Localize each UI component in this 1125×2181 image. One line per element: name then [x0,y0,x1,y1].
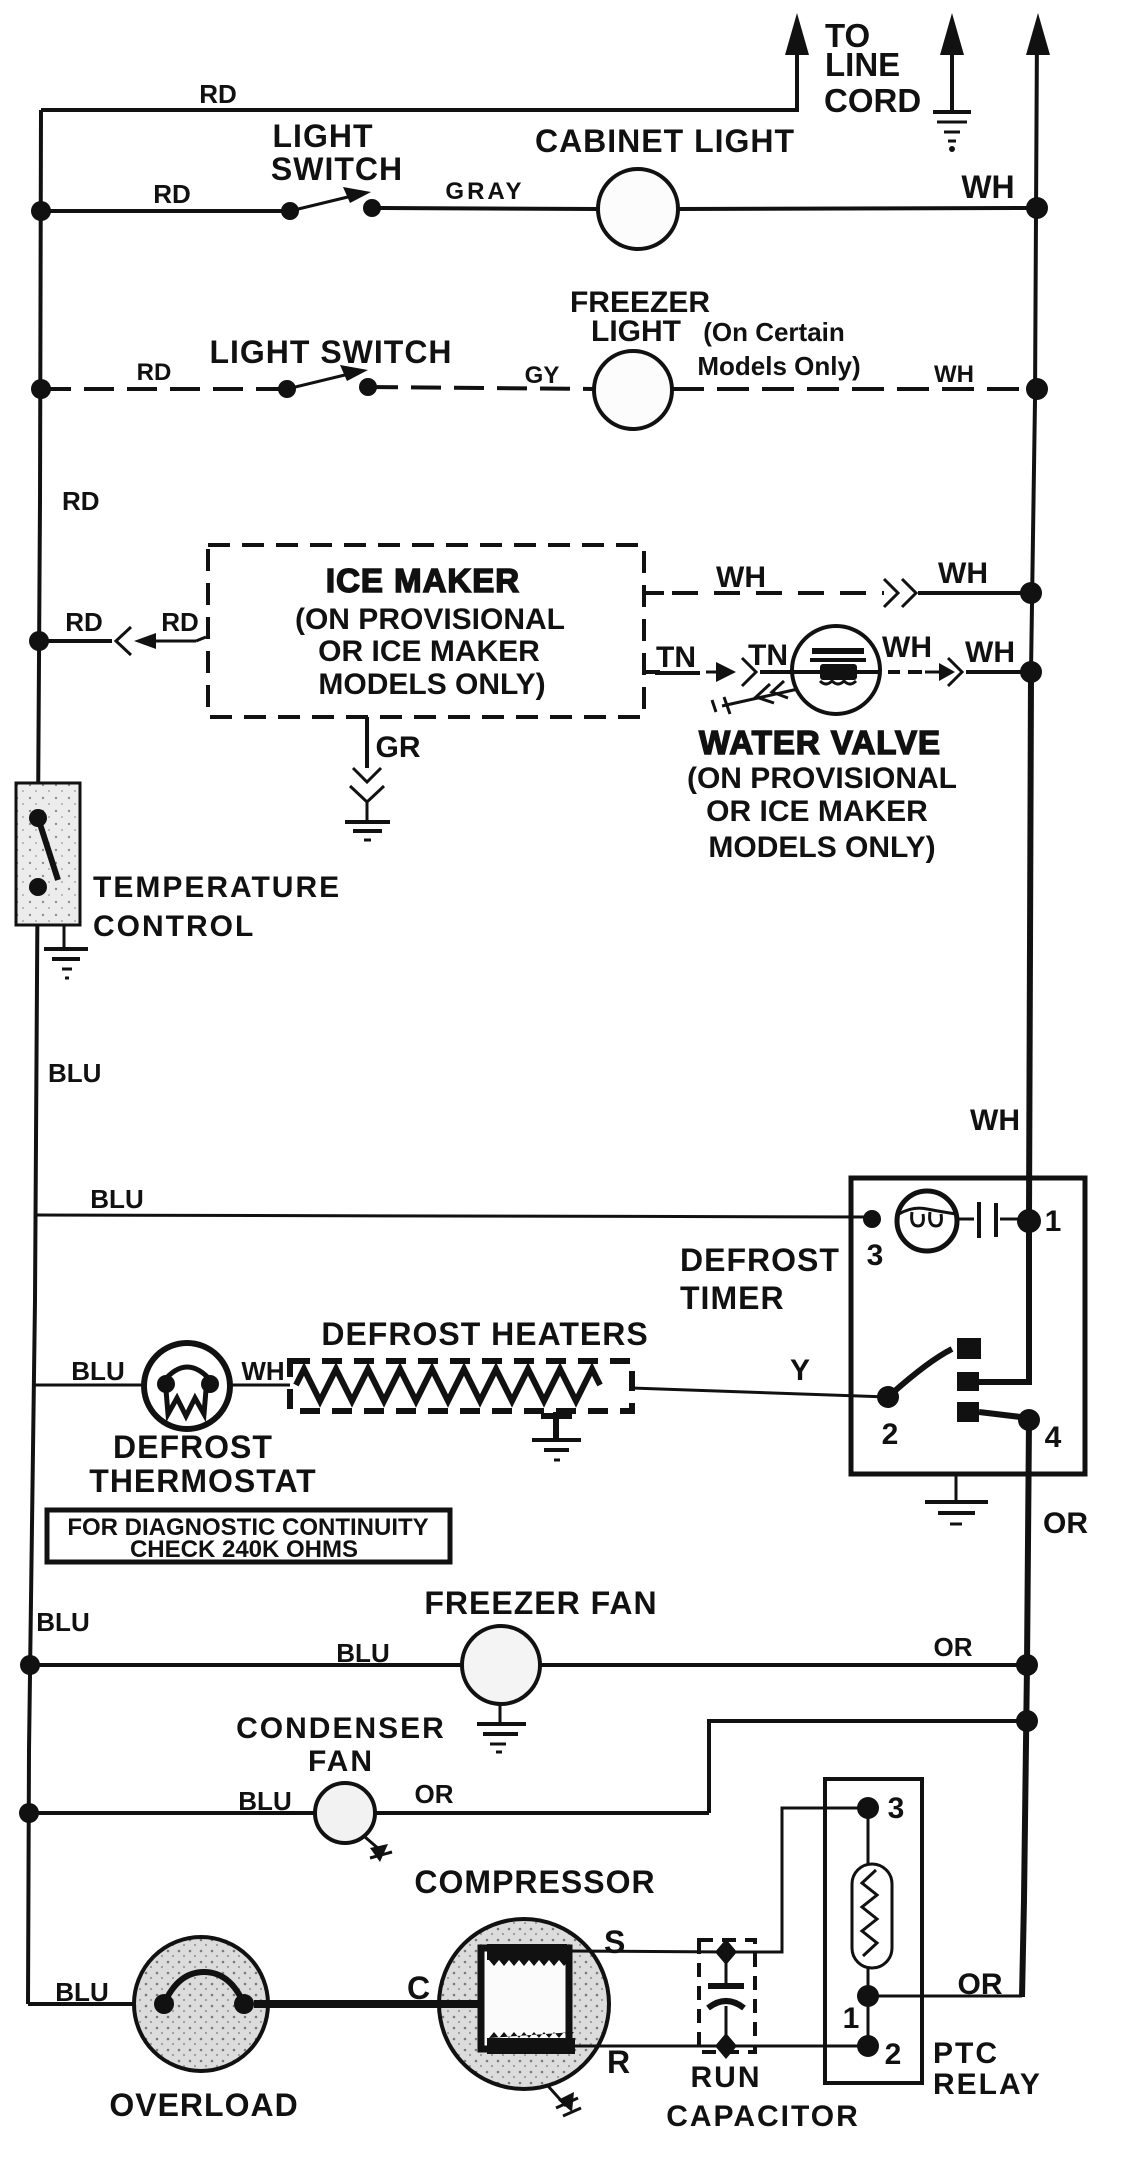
svg-text:FREEZER FAN: FREEZER FAN [424,1585,657,1621]
svg-text:RD: RD [62,486,100,516]
svg-text:BLU: BLU [336,1638,389,1668]
svg-text:CHECK 240K OHMS: CHECK 240K OHMS [130,1536,358,1563]
svg-text:S: S [604,1924,626,1960]
svg-text:OR ICE MAKER: OR ICE MAKER [318,635,540,668]
svg-text:RD: RD [153,179,191,209]
svg-text:OR ICE MAKER: OR ICE MAKER [706,795,928,828]
svg-text:WH: WH [882,631,932,664]
svg-text:4: 4 [1045,1421,1062,1454]
svg-text:BLU: BLU [90,1184,143,1214]
svg-text:CABINET LIGHT: CABINET LIGHT [535,123,795,159]
svg-text:RD: RD [137,359,172,386]
svg-text:CAPACITOR: CAPACITOR [666,2100,860,2133]
svg-text:MODELS ONLY): MODELS ONLY) [708,831,935,864]
svg-text:TIMER: TIMER [680,1280,785,1316]
svg-text:WH: WH [934,361,974,388]
svg-text:WH: WH [938,557,988,590]
svg-text:THERMOSTAT: THERMOSTAT [89,1463,316,1499]
svg-text:OR: OR [415,1779,454,1809]
svg-text:DEFROST: DEFROST [680,1242,840,1278]
svg-text:BLU: BLU [238,1786,291,1816]
svg-text:RD: RD [199,79,237,109]
svg-text:C: C [407,1970,431,2006]
svg-text:LIGHT SWITCH: LIGHT SWITCH [209,334,452,370]
svg-text:WH: WH [716,561,766,594]
svg-text:OR: OR [1043,1507,1088,1540]
svg-text:SWITCH: SWITCH [271,151,403,187]
svg-text:TN: TN [748,639,788,672]
svg-text:RD: RD [65,607,103,637]
svg-text:RD: RD [161,607,199,637]
svg-text:BLU: BLU [48,1058,101,1088]
svg-text:TN: TN [656,641,696,674]
svg-text:3: 3 [867,1239,884,1272]
svg-text:2: 2 [882,1418,899,1451]
svg-text:BLU: BLU [71,1356,124,1386]
svg-text:R: R [607,2044,631,2080]
svg-text:(ON PROVISIONAL: (ON PROVISIONAL [687,762,957,795]
svg-text:GRAY: GRAY [445,178,524,205]
svg-text:BLU: BLU [36,1607,89,1637]
svg-text:MODELS ONLY): MODELS ONLY) [318,668,545,701]
svg-text:LINE: LINE [825,46,900,83]
svg-text:DEFROST HEATERS: DEFROST HEATERS [321,1316,648,1352]
svg-text:Models Only): Models Only) [697,351,860,381]
svg-text:RUN: RUN [691,2061,762,2094]
svg-text:1: 1 [843,2002,860,2035]
svg-text:BLU: BLU [55,1977,108,2007]
svg-text:(On Certain: (On Certain [703,317,845,347]
svg-text:TEMPERATURE: TEMPERATURE [93,871,341,904]
svg-text:WATER VALVE: WATER VALVE [699,724,941,761]
svg-text:(ON PROVISIONAL: (ON PROVISIONAL [295,603,565,636]
svg-text:GY: GY [525,362,560,389]
svg-text:OVERLOAD: OVERLOAD [109,2087,298,2123]
svg-text:LIGHT: LIGHT [591,315,681,348]
svg-text:ICE MAKER: ICE MAKER [326,562,520,599]
svg-text:COMPRESSOR: COMPRESSOR [414,1864,655,1900]
svg-text:WH: WH [970,1104,1020,1137]
svg-text:LIGHT: LIGHT [273,118,374,154]
svg-text:DEFROST: DEFROST [113,1429,273,1465]
svg-text:Y: Y [790,1354,810,1387]
svg-text:CONDENSER: CONDENSER [236,1712,446,1745]
svg-text:WH: WH [241,1356,284,1386]
svg-text:WH: WH [965,636,1015,669]
svg-text:GR: GR [376,731,421,764]
svg-text:1: 1 [1045,1205,1062,1238]
svg-text:FAN: FAN [308,1745,374,1778]
svg-text:3: 3 [888,1792,905,1825]
svg-text:2: 2 [885,2038,902,2071]
svg-text:CORD: CORD [824,82,921,119]
svg-text:PTC: PTC [933,2037,999,2070]
svg-text:OR: OR [958,1968,1003,2001]
svg-text:WH: WH [961,169,1014,205]
svg-text:OR: OR [934,1632,973,1662]
svg-text:CONTROL: CONTROL [93,910,255,943]
svg-text:RELAY: RELAY [933,2068,1042,2101]
